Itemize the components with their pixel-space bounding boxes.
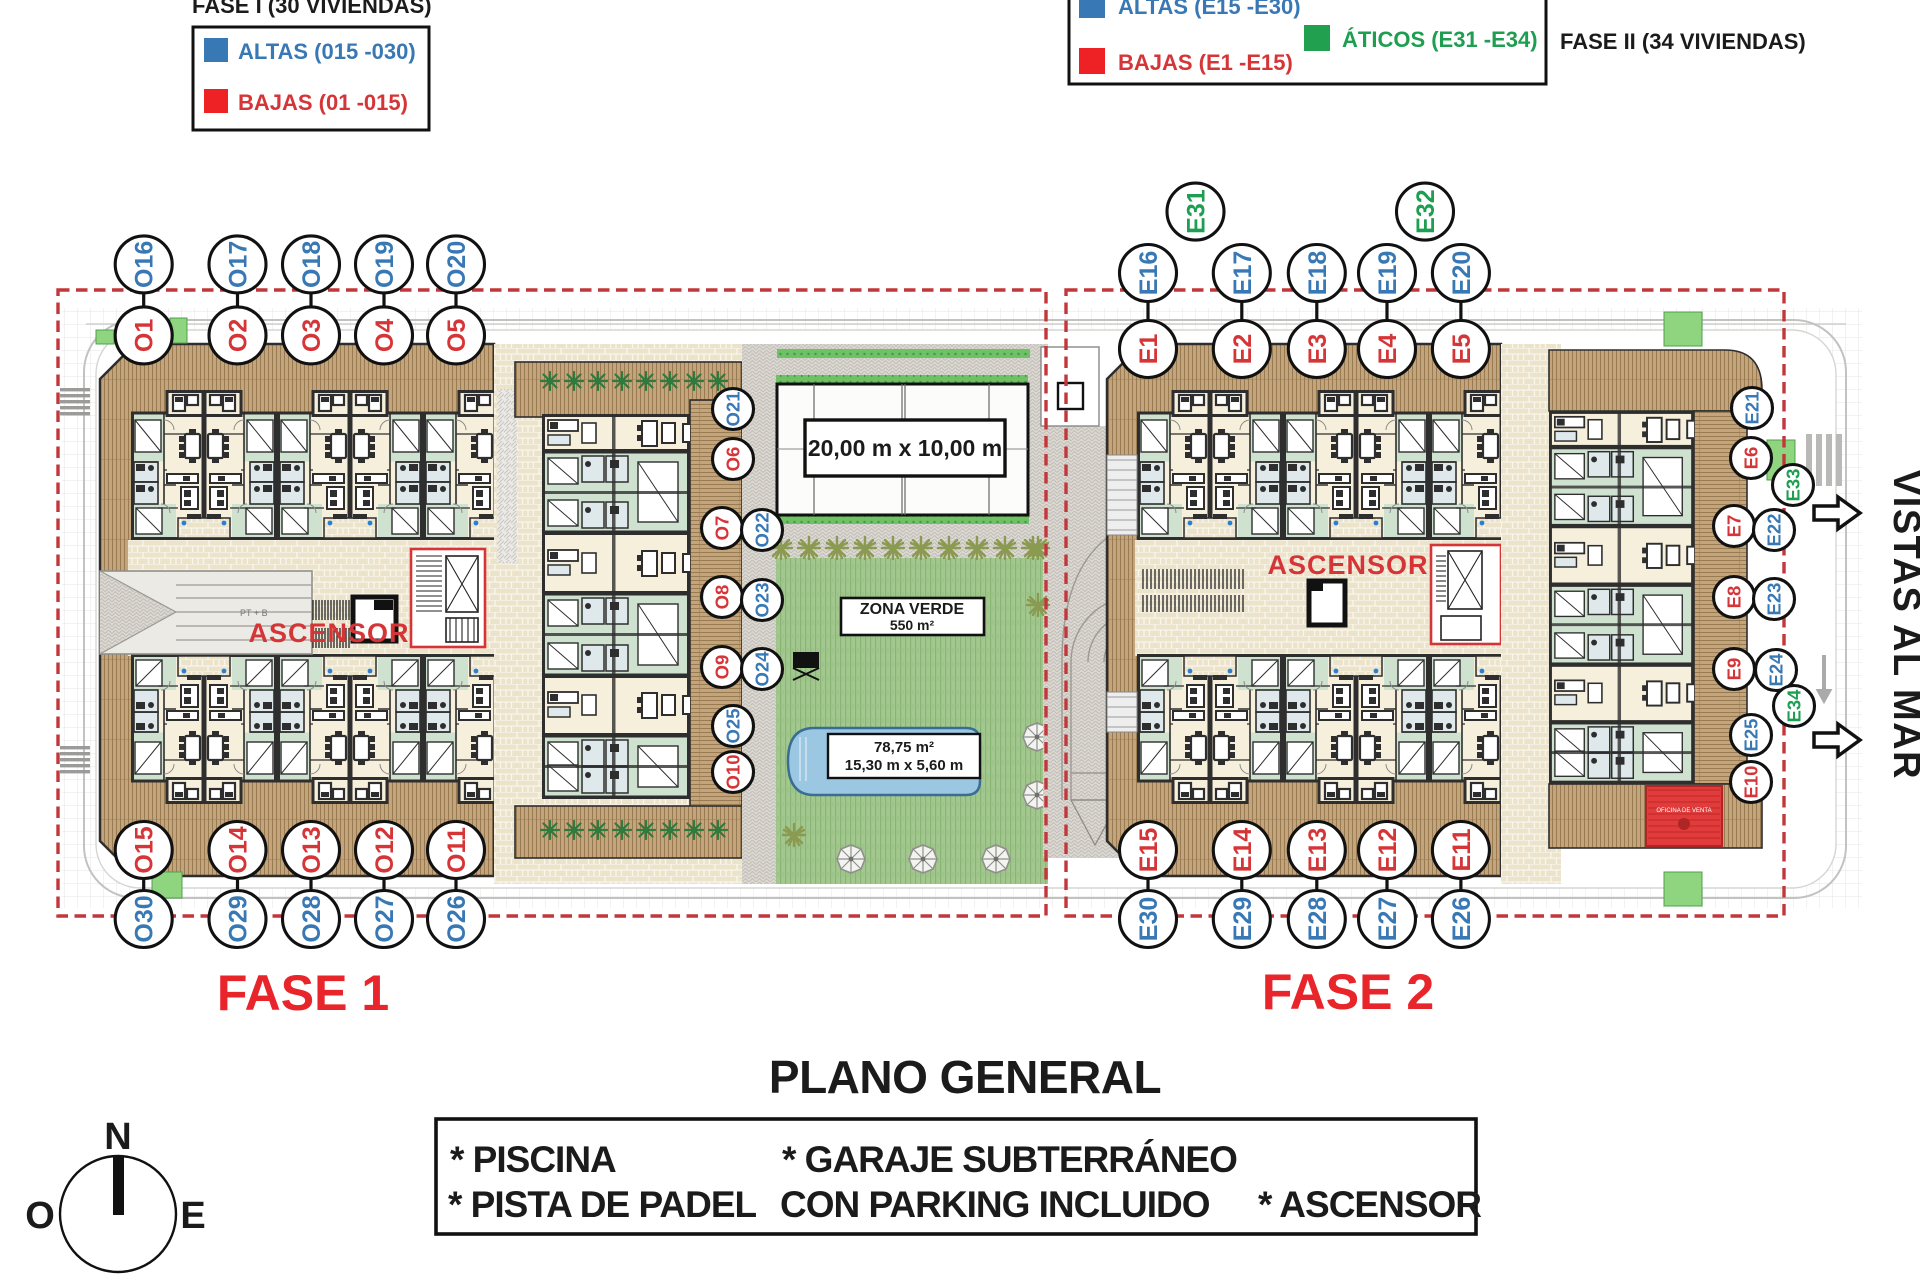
- svg-text:E15: E15: [1135, 828, 1163, 873]
- svg-text:* PISTA DE PADEL: * PISTA DE PADEL: [448, 1184, 757, 1225]
- svg-text:O22: O22: [752, 513, 773, 548]
- svg-text:E23: E23: [1764, 583, 1785, 616]
- svg-text:BAJAS (E1 -E15): BAJAS (E1 -E15): [1118, 50, 1293, 75]
- svg-text:N: N: [104, 1116, 131, 1158]
- svg-text:FASE 1: FASE 1: [217, 965, 389, 1021]
- svg-text:O16: O16: [131, 241, 159, 288]
- svg-text:O12: O12: [371, 826, 399, 873]
- svg-text:E3: E3: [1304, 334, 1332, 365]
- svg-text:78,75 m²: 78,75 m²: [874, 739, 934, 756]
- svg-text:O27: O27: [371, 895, 399, 942]
- svg-text:O13: O13: [298, 826, 326, 873]
- svg-text:E31: E31: [1183, 189, 1211, 234]
- svg-text:FASE 2: FASE 2: [1262, 964, 1434, 1020]
- svg-text:E12: E12: [1374, 828, 1402, 872]
- svg-text:E18: E18: [1304, 251, 1332, 296]
- svg-text:E13: E13: [1304, 828, 1332, 872]
- svg-text:CON PARKING INCLUIDO: CON PARKING INCLUIDO: [780, 1184, 1210, 1225]
- svg-text:E6: E6: [1741, 447, 1762, 470]
- svg-text:* PISCINA: * PISCINA: [450, 1139, 616, 1180]
- svg-text:ASCENSOR: ASCENSOR: [248, 618, 409, 648]
- svg-text:O4: O4: [371, 319, 399, 352]
- svg-text:E21: E21: [1742, 392, 1763, 425]
- svg-text:E28: E28: [1304, 897, 1332, 942]
- svg-text:BAJAS (01 -015): BAJAS (01 -015): [238, 90, 408, 115]
- svg-text:O19: O19: [371, 241, 399, 288]
- svg-text:E8: E8: [1724, 586, 1745, 609]
- svg-text:O7: O7: [712, 516, 733, 541]
- svg-text:ZONA VERDE: ZONA VERDE: [860, 601, 965, 618]
- svg-text:550 m²: 550 m²: [890, 617, 935, 633]
- svg-text:E2: E2: [1229, 334, 1257, 365]
- svg-text:O10: O10: [723, 755, 744, 790]
- svg-text:E10: E10: [1741, 766, 1762, 799]
- svg-text:O2: O2: [225, 319, 253, 352]
- svg-text:E34: E34: [1784, 689, 1805, 723]
- svg-text:O11: O11: [443, 827, 471, 873]
- svg-text:O14: O14: [225, 826, 253, 873]
- svg-text:O17: O17: [225, 241, 253, 288]
- svg-text:E32: E32: [1412, 189, 1440, 233]
- svg-text:O8: O8: [712, 585, 733, 610]
- svg-text:* GARAJE SUBTERRÁNEO: * GARAJE SUBTERRÁNEO: [782, 1139, 1237, 1180]
- svg-text:E33: E33: [1783, 469, 1804, 502]
- svg-text:E27: E27: [1374, 897, 1402, 941]
- svg-text:E20: E20: [1448, 251, 1476, 295]
- svg-text:E: E: [180, 1195, 205, 1237]
- svg-text:O5: O5: [443, 319, 471, 352]
- svg-text:ASCENSOR: ASCENSOR: [1267, 550, 1428, 580]
- svg-text:20,00 m x 10,00 m: 20,00 m x 10,00 m: [808, 435, 1002, 461]
- svg-text:E1: E1: [1135, 334, 1163, 365]
- svg-text:E26: E26: [1448, 897, 1476, 941]
- svg-text:ALTAS (E15 -E30): ALTAS (E15 -E30): [1118, 0, 1301, 19]
- svg-text:E17: E17: [1229, 251, 1257, 295]
- svg-text:E16: E16: [1135, 251, 1163, 295]
- svg-text:O9: O9: [712, 655, 733, 680]
- svg-text:E11: E11: [1448, 828, 1476, 871]
- svg-text:ÁTICOS (E31 -E34): ÁTICOS (E31 -E34): [1342, 27, 1538, 52]
- svg-text:E9: E9: [1724, 658, 1745, 681]
- svg-text:O: O: [25, 1195, 55, 1237]
- svg-text:PLANO GENERAL: PLANO GENERAL: [769, 1051, 1161, 1103]
- svg-text:E19: E19: [1374, 251, 1402, 295]
- svg-text:O25: O25: [723, 709, 744, 744]
- svg-text:15,30 m x 5,60 m: 15,30 m x 5,60 m: [845, 757, 963, 774]
- svg-text:O23: O23: [752, 583, 773, 618]
- svg-text:O15: O15: [131, 826, 159, 873]
- svg-text:E29: E29: [1229, 897, 1257, 941]
- svg-text:E5: E5: [1448, 334, 1476, 365]
- svg-text:O1: O1: [131, 319, 159, 352]
- svg-text:O26: O26: [443, 895, 471, 942]
- svg-text:FASE I (30 VIVIENDAS): FASE I (30 VIVIENDAS): [192, 0, 432, 18]
- svg-text:E4: E4: [1374, 334, 1402, 365]
- svg-text:E14: E14: [1229, 828, 1257, 873]
- svg-text:O20: O20: [443, 241, 471, 288]
- svg-text:O18: O18: [298, 241, 326, 288]
- svg-text:E25: E25: [1741, 719, 1762, 752]
- svg-text:* ASCENSOR: * ASCENSOR: [1258, 1184, 1481, 1225]
- svg-text:FASE II (34 VIVIENDAS): FASE II (34 VIVIENDAS): [1560, 29, 1806, 54]
- svg-text:E7: E7: [1724, 515, 1745, 538]
- svg-text:O6: O6: [723, 447, 744, 472]
- svg-text:O30: O30: [131, 895, 159, 942]
- svg-text:E22: E22: [1764, 514, 1785, 547]
- svg-text:PT + B: PT + B: [240, 608, 268, 618]
- svg-text:E30: E30: [1135, 897, 1163, 941]
- svg-text:O24: O24: [752, 651, 773, 687]
- svg-text:O3: O3: [298, 319, 326, 352]
- svg-text:ALTAS (015 -030): ALTAS (015 -030): [238, 39, 416, 64]
- svg-text:VISTAS AL MAR: VISTAS AL MAR: [1885, 470, 1920, 780]
- svg-text:O21: O21: [723, 392, 744, 427]
- svg-text:OFICINA DE VENTA: OFICINA DE VENTA: [1656, 808, 1711, 814]
- svg-text:E24: E24: [1766, 653, 1787, 687]
- svg-text:O28: O28: [298, 895, 326, 942]
- svg-text:O29: O29: [225, 895, 253, 942]
